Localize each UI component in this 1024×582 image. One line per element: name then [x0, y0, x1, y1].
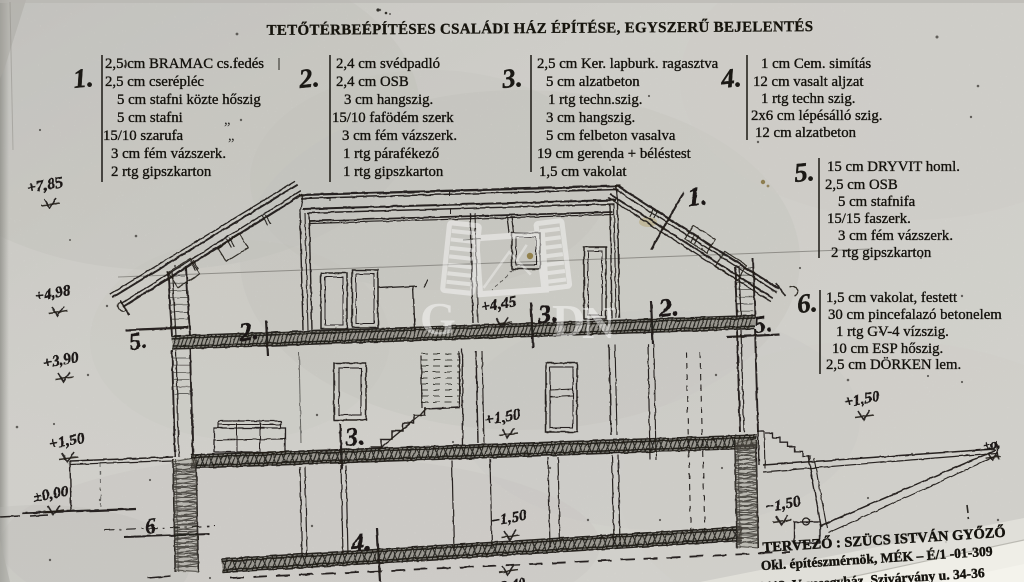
svg-text:12 cm alzatbeton: 12 cm alzatbeton [755, 125, 857, 141]
svg-text:4.: 4. [718, 62, 742, 94]
svg-text:1,5 cm vakolat: 1,5 cm vakolat [539, 164, 627, 180]
svg-text:3.: 3. [343, 421, 366, 452]
svg-text:2,5 cm Ker. lapburk. ragasztva: 2,5 cm Ker. lapburk. ragasztva [537, 56, 719, 72]
svg-text:1.: 1. [71, 62, 94, 94]
svg-text:1 rtg gipszkarton: 1 rtg gipszkarton [343, 164, 444, 180]
svg-text:2.: 2. [296, 62, 320, 94]
svg-text:5.: 5. [792, 156, 815, 188]
svg-text:5 cm alzatbeton: 5 cm alzatbeton [546, 74, 640, 90]
svg-text:±o,: ±o, [982, 435, 1001, 453]
svg-text:30 cm pincefalazó betonelem: 30 cm pincefalazó betonelem [828, 307, 1002, 323]
svg-text:2,5 cm cserépléc: 2,5 cm cserépléc [105, 74, 204, 90]
svg-text:1 rtg techn szig.: 1 rtg techn szig. [761, 91, 856, 107]
svg-text:19 cm gerenda + béléstest: 19 cm gerenda + béléstest [537, 146, 692, 162]
svg-text:2 rtg gipszkarton: 2 rtg gipszkarton [831, 245, 932, 261]
svg-text:1 cm Cem. simítás: 1 cm Cem. simítás [761, 56, 871, 72]
svg-text:1 rtg GV-4 vízszig.: 1 rtg GV-4 vízszig. [836, 324, 949, 340]
svg-text:2,4 cm svédpadló: 2,4 cm svédpadló [336, 56, 440, 72]
svg-text:2.: 2. [657, 292, 680, 323]
svg-text:10 cm ESP hőszig.: 10 cm ESP hőszig. [832, 341, 943, 357]
svg-text:15/15 faszerk.: 15/15 faszerk. [827, 211, 911, 227]
svg-text:„: „ [228, 128, 234, 144]
svg-text:15/10 fafödém szerk: 15/10 fafödém szerk [332, 110, 454, 126]
svg-text:1,5 cm vakolat, festett: 1,5 cm vakolat, festett [826, 290, 958, 306]
svg-text:1 rtg techn.szig.: 1 rtg techn.szig. [548, 92, 643, 108]
svg-text:3 cm fém vázszerk.: 3 cm fém vázszerk. [342, 128, 457, 144]
svg-text:2,5 cm DÖRKEN lem.: 2,5 cm DÖRKEN lem. [826, 356, 961, 373]
svg-text:3.: 3. [499, 62, 523, 94]
svg-text:3 cm fém vázszerk.: 3 cm fém vázszerk. [111, 146, 226, 162]
svg-text:D: D [552, 295, 585, 346]
svg-text:„: „ [224, 112, 230, 128]
svg-text:4.: 4. [349, 527, 372, 558]
svg-text:2,5 cm OSB: 2,5 cm OSB [825, 177, 898, 193]
svg-text:5 cm stafni közte hőszig: 5 cm stafni közte hőszig [117, 92, 261, 108]
svg-text:1.: 1. [686, 181, 708, 212]
svg-text:5.: 5. [752, 311, 773, 339]
svg-text:G: G [420, 293, 456, 344]
svg-text:6.: 6. [795, 287, 818, 319]
svg-text:5 cm stafnifa: 5 cm stafnifa [838, 194, 916, 210]
svg-text:3 cm hangszig.: 3 cm hangszig. [546, 110, 635, 126]
svg-text:5 cm felbeton vasalva: 5 cm felbeton vasalva [546, 128, 676, 144]
svg-text:2,4 cm OSB: 2,4 cm OSB [336, 74, 409, 90]
svg-text:3 cm hangszig.: 3 cm hangszig. [344, 92, 433, 108]
svg-text:15/10 szarufa: 15/10 szarufa [103, 128, 184, 144]
svg-text:5.: 5. [127, 328, 148, 356]
svg-text:1 rtg párafékező: 1 rtg párafékező [343, 146, 439, 162]
svg-text:2.: 2. [237, 316, 260, 347]
svg-text:12 cm vasalt aljzat: 12 cm vasalt aljzat [753, 74, 864, 90]
svg-text:N: N [582, 297, 615, 348]
svg-text:3 cm fém vázszerk.: 3 cm fém vázszerk. [838, 228, 953, 244]
svg-text:2x6 cm lépésálló szig.: 2x6 cm lépésálló szig. [751, 108, 883, 124]
svg-text:5 cm stafni: 5 cm stafni [117, 110, 183, 126]
svg-text:2 rtg gipszkarton: 2 rtg gipszkarton [111, 164, 212, 180]
svg-text:2,5 cm BRAMAC cs.fedés: 2,5 cm BRAMAC cs.fedés [105, 56, 264, 72]
svg-text:15 cm DRYVIT homl.: 15 cm DRYVIT homl. [827, 159, 960, 175]
